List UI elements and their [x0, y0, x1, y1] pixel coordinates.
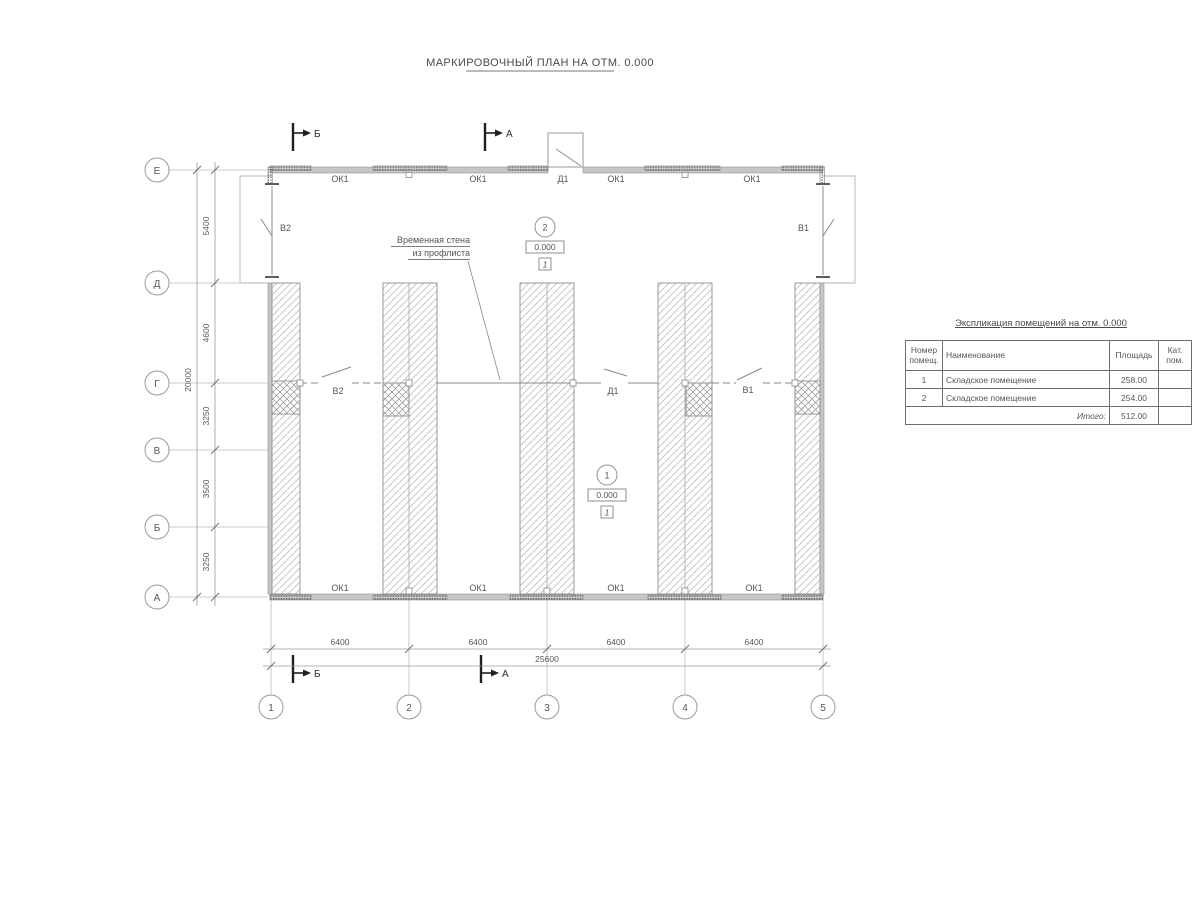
floor-plan-canvas: МАРКИРОВОЧНЫЙ ПЛАН НА ОТМ. 0.000 [0, 0, 1200, 900]
dim-value: 5400 [201, 216, 211, 235]
window-label: ОК1 [469, 583, 486, 593]
floor-type: 1 [605, 508, 610, 518]
window-label: ОК1 [331, 174, 348, 184]
room-marker-2: 2 0.000 1 [526, 217, 564, 270]
axis-col-label: 2 [406, 703, 412, 714]
axis-bubbles-rows: Е Д Г В Б А [145, 158, 169, 609]
dim-value: 6400 [469, 637, 488, 647]
window-label: ОК1 [331, 583, 348, 593]
dim-value: 4600 [201, 323, 211, 342]
floor-type: 1 [543, 260, 548, 270]
room-number-cell: 1 [906, 371, 943, 389]
explication-table: Номер помещ. Наименование Площадь Кат. п… [905, 340, 1192, 425]
window-label: ОК1 [743, 174, 760, 184]
window-label: ОК1 [607, 583, 624, 593]
explication: Экспликация помещений на отм. 0.000 Номе… [905, 318, 1177, 425]
dim-value: 6400 [745, 637, 764, 647]
table-header-name: Наименование [943, 341, 1110, 371]
gate-label: В1 [798, 223, 809, 233]
note-line1: Временная стена [397, 235, 470, 245]
axis-bubbles-cols: 1 2 3 4 5 [259, 695, 835, 719]
table-header-row: Номер помещ. Наименование Площадь Кат. п… [906, 341, 1192, 371]
pier-axis5 [795, 283, 820, 594]
dim-total: 25600 [535, 654, 559, 664]
gate-label: В1 [742, 385, 753, 395]
section-a-top: А [485, 123, 513, 151]
room-area-cell: 258.00 [1110, 371, 1159, 389]
pier-axis3 [520, 283, 574, 594]
section-label: А [506, 129, 513, 140]
door-leaf [604, 369, 627, 376]
section-b-bottom: Б [293, 655, 321, 683]
entrance-tambour [548, 133, 583, 167]
table-row: 1 Складское помещение 258.00 [906, 371, 1192, 389]
axis-lines [169, 170, 823, 695]
room-level: 0.000 [596, 490, 618, 500]
dim-value: 3250 [201, 552, 211, 571]
table-total-row: Итого: 512.00 [906, 407, 1192, 425]
gate-leaf [737, 368, 762, 380]
vertical-dimensions: 5400 4600 3250 3500 3250 20000 [183, 162, 219, 606]
pier-axis1 [272, 283, 300, 594]
table-title: Экспликация помещений на отм. 0.000 [905, 318, 1177, 329]
room-level: 0.000 [534, 242, 556, 252]
section-label: Б [314, 669, 321, 680]
leader-line [468, 261, 500, 380]
axis-col-label: 3 [544, 703, 550, 714]
junction-block [272, 381, 300, 414]
door-label: Д1 [557, 174, 568, 184]
room-name-cell: Складское помещение [943, 389, 1110, 407]
axis-col-label: 4 [682, 703, 688, 714]
pier-axis4 [658, 283, 712, 594]
dim-total: 20000 [183, 368, 193, 392]
axis-row-label: Г [154, 379, 160, 390]
page-title: МАРКИРОВОЧНЫЙ ПЛАН НА ОТМ. 0.000 [426, 56, 654, 69]
total-value: 512.00 [1110, 407, 1159, 425]
gate-right [816, 184, 834, 277]
gate-leaf [261, 219, 272, 236]
table-row: 2 Складское помещение 254.00 [906, 389, 1192, 407]
dim-value: 6400 [331, 637, 350, 647]
gate-label: В2 [332, 386, 343, 396]
room-number-cell: 2 [906, 389, 943, 407]
dim-value: 3500 [201, 479, 211, 498]
drawing-sheet: МАРКИРОВОЧНЫЙ ПЛАН НА ОТМ. 0.000 [0, 0, 1200, 900]
table-header-area: Площадь [1110, 341, 1159, 371]
axis-col-label: 5 [820, 703, 826, 714]
gate-left [261, 184, 279, 277]
junction-block [383, 383, 409, 416]
section-b-top: Б [293, 123, 321, 151]
table-header-number: Номер помещ. [906, 341, 943, 371]
axis-row-label: А [154, 593, 161, 604]
room-name-cell: Складское помещение [943, 371, 1110, 389]
section-label: А [502, 669, 509, 680]
door-label: Д1 [607, 386, 618, 396]
dim-value: 3250 [201, 406, 211, 425]
room-number: 2 [542, 223, 547, 233]
axis-row-label: Е [154, 166, 161, 177]
pier-axis2 [383, 283, 437, 594]
section-label: Б [314, 129, 321, 140]
window-label: ОК1 [745, 583, 762, 593]
room-category-cell [1159, 371, 1192, 389]
axis-row-label: Б [154, 523, 161, 534]
table-header-category: Кат. пом. [1159, 341, 1192, 371]
junction-block [795, 381, 820, 414]
axis-row-label: Д [154, 279, 161, 290]
section-a-bottom: А [481, 655, 509, 683]
room-area-cell: 254.00 [1110, 389, 1159, 407]
window-label: ОК1 [469, 174, 486, 184]
room-marker-1: 1 0.000 1 [588, 465, 626, 518]
junction-block [686, 383, 712, 416]
gate-label: В2 [280, 223, 291, 233]
window-label: ОК1 [607, 174, 624, 184]
total-label: Итого: [906, 407, 1110, 425]
gate-leaf [322, 367, 351, 377]
axis-row-label: В [154, 446, 161, 457]
axis-col-label: 1 [268, 703, 274, 714]
note-line2: из профлиста [412, 248, 470, 258]
gate-leaf [823, 219, 834, 236]
room-category-cell [1159, 389, 1192, 407]
dim-value: 6400 [607, 637, 626, 647]
room-number: 1 [604, 471, 609, 481]
